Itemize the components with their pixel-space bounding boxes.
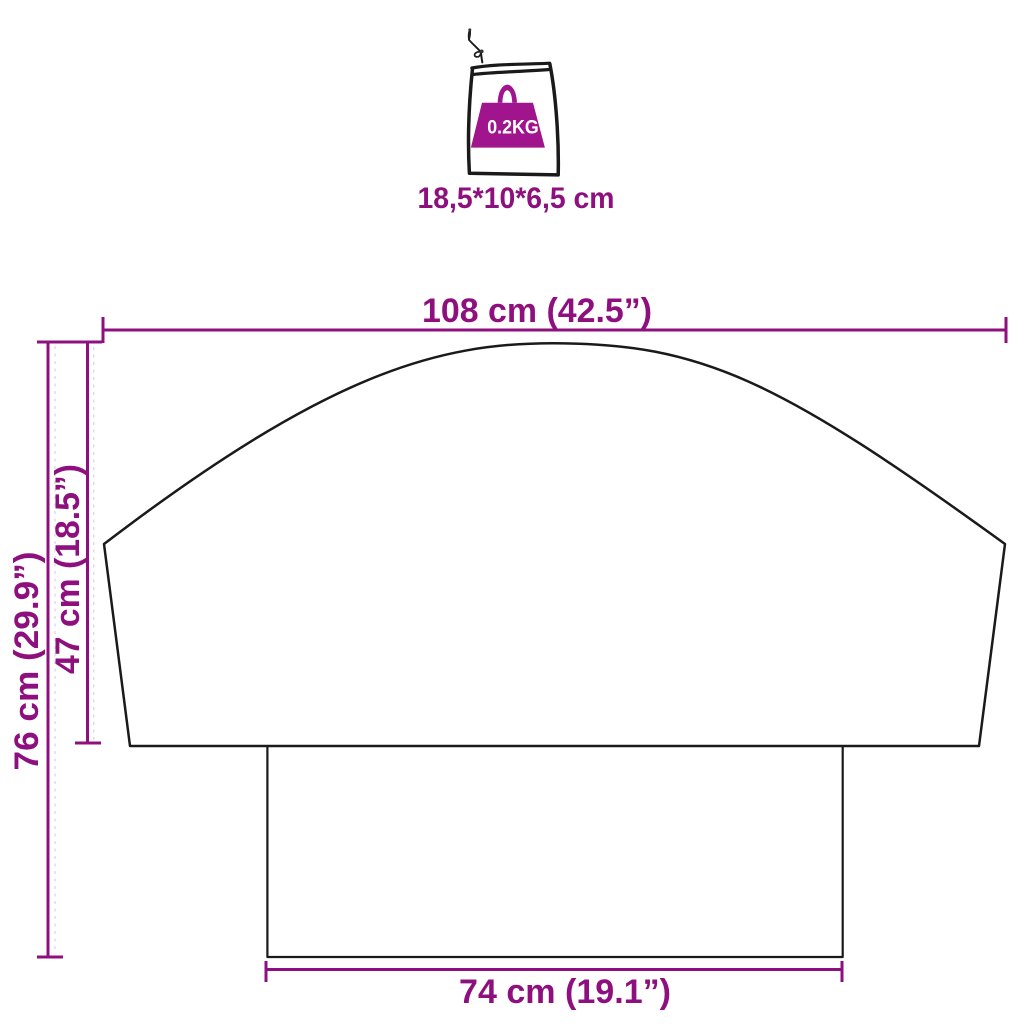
- svg-text:76 cm (29.9”): 76 cm (29.9”): [8, 552, 46, 771]
- svg-text:47 cm (18.5”): 47 cm (18.5”): [49, 464, 87, 674]
- svg-text:0.2KG: 0.2KG: [487, 117, 539, 138]
- svg-text:108 cm (42.5”): 108 cm (42.5”): [422, 292, 652, 330]
- svg-text:74 cm (19.1”): 74 cm (19.1”): [459, 973, 671, 1011]
- svg-text:18,5*10*6,5 cm: 18,5*10*6,5 cm: [418, 182, 615, 215]
